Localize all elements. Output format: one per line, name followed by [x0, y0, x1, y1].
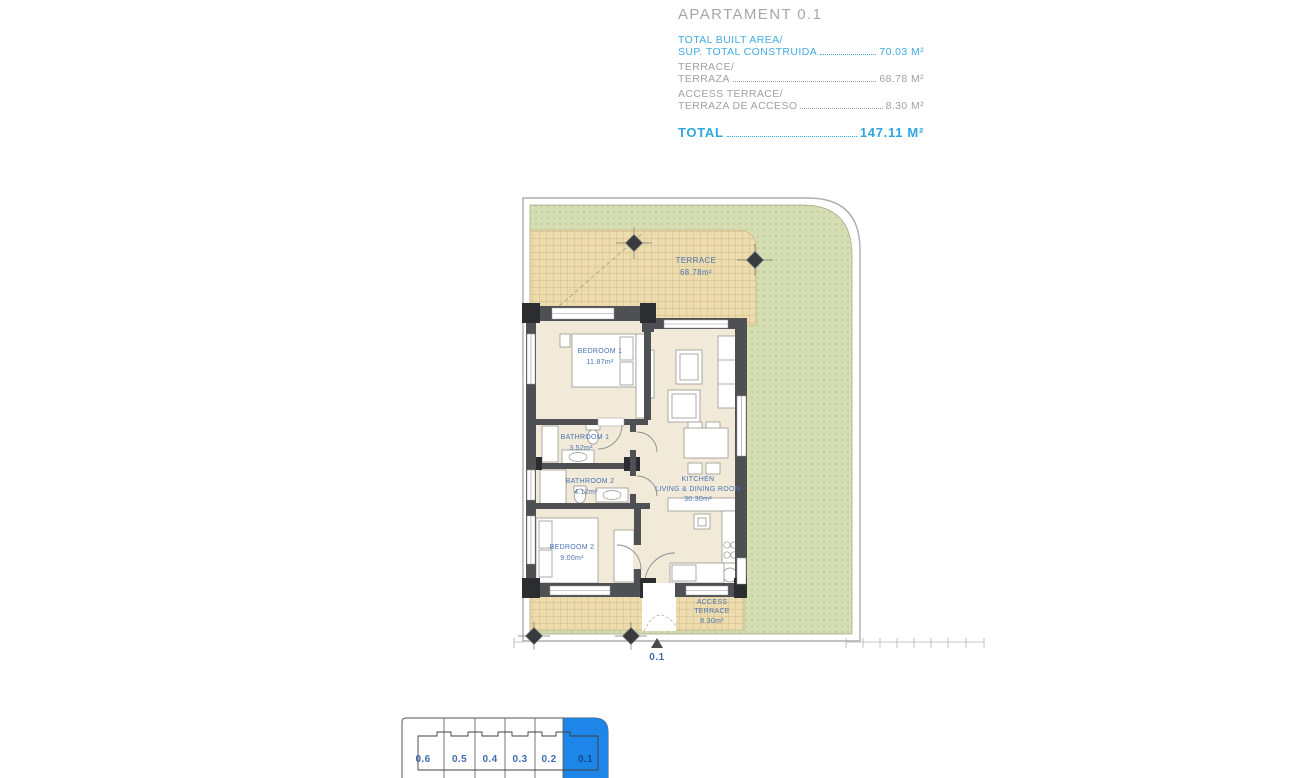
- room-label-kitchen-line2: LIVING & DINING ROOM: [655, 486, 741, 493]
- area-row-label-line2: TERRAZA DE ACCESO: [678, 100, 797, 112]
- partition-wall: [536, 503, 650, 509]
- area-row-terrace: TERRACE/ TERRAZA 68.78 M²: [678, 61, 924, 85]
- room-label-bathroom2: BATHROOM 2: [566, 478, 615, 485]
- area-row-label-line1: TERRACE/: [678, 61, 924, 73]
- area-row-label-line1: ACCESS TERRACE/: [678, 88, 924, 100]
- dotted-leader: [733, 81, 877, 82]
- area-row-label-line2: SUP. TOTAL CONSTRUIDA: [678, 46, 817, 58]
- dotted-leader: [800, 108, 882, 109]
- room-area-terrace: 68.78m²: [680, 268, 712, 277]
- area-summary: APARTAMENT 0.1 TOTAL BUILT AREA/ SUP. TO…: [678, 6, 924, 140]
- room-label-access-terrace: ACCESS: [697, 599, 728, 606]
- room-area-access-terrace: 8.30m²: [700, 618, 724, 625]
- room-label-bedroom2: BEDROOM 2: [550, 544, 595, 551]
- room-label-kitchen: KITCHEN: [682, 476, 715, 483]
- door-opening: [598, 418, 624, 426]
- area-row-built: TOTAL BUILT AREA/ SUP. TOTAL CONSTRUIDA …: [678, 34, 924, 58]
- keyplan-unit-0.3[interactable]: 0.3: [512, 754, 527, 765]
- area-row-value: 8.30 M²: [886, 100, 924, 112]
- partition-wall: [536, 419, 648, 425]
- column: [640, 303, 656, 323]
- page-title: APARTAMENT 0.1: [678, 6, 924, 23]
- room-area-bedroom1: 11.87m²: [586, 359, 614, 366]
- door-opening: [629, 476, 637, 494]
- column: [522, 578, 540, 598]
- entrance-unit-label: 0.1: [649, 652, 664, 663]
- area-row-value: 70.03 M²: [879, 46, 924, 58]
- area-row-access-terrace: ACCESS TERRACE/ TERRAZA DE ACCESO 8.30 M…: [678, 88, 924, 112]
- exterior-wall: [735, 318, 747, 597]
- room-label-bedroom1: BEDROOM 1: [578, 348, 623, 355]
- floor-plan: 0.1 TERRACE 68.78m² BEDROOM 1 11.87m² BA…: [505, 185, 1005, 670]
- dimension-ruler: [514, 638, 984, 648]
- entrance-arrow-icon: [651, 638, 663, 648]
- column: [522, 303, 540, 323]
- room-label-access-terrace-line2: TERRACE: [694, 608, 730, 615]
- partition-wall: [644, 320, 651, 420]
- keyplan-unit-0.2[interactable]: 0.2: [541, 754, 556, 765]
- floorplan-page: APARTAMENT 0.1 TOTAL BUILT AREA/ SUP. TO…: [0, 0, 1315, 778]
- door-opening: [629, 432, 637, 450]
- room-area-kitchen: 30.30m²: [684, 496, 712, 503]
- area-row-label-line1: TOTAL BUILT AREA/: [678, 34, 924, 46]
- partition-wall: [536, 463, 636, 469]
- keyplan-unit-0.4[interactable]: 0.4: [482, 754, 497, 765]
- room-label-bathroom1: BATHROOM 1: [561, 434, 610, 441]
- keyplan: 0.6 0.5 0.4 0.3 0.2 0.1: [395, 712, 635, 778]
- keyplan-unit-0.6[interactable]: 0.6: [415, 754, 430, 765]
- keyplan-unit-0.1-selected[interactable]: 0.1: [578, 754, 593, 765]
- area-row-label-line2: TERRAZA: [678, 73, 730, 85]
- room-area-bedroom2: 9.00m²: [560, 555, 584, 562]
- dotted-leader: [820, 54, 876, 55]
- room-area-bathroom1: 3.52m²: [569, 445, 593, 452]
- area-row-value: 68.78 M²: [879, 73, 924, 85]
- room-label-terrace: TERRACE: [676, 256, 717, 265]
- total-label: TOTAL: [678, 125, 724, 140]
- total-value: 147.11 M²: [860, 125, 924, 140]
- keyplan-unit-0.5[interactable]: 0.5: [452, 754, 467, 765]
- area-total-row: TOTAL 147.11 M²: [678, 125, 924, 140]
- room-area-bathroom2: 4.12m²: [574, 489, 598, 496]
- keyplan-highlight-cell[interactable]: [563, 718, 608, 778]
- wardrobe-2: [614, 530, 634, 582]
- dotted-leader: [727, 136, 857, 137]
